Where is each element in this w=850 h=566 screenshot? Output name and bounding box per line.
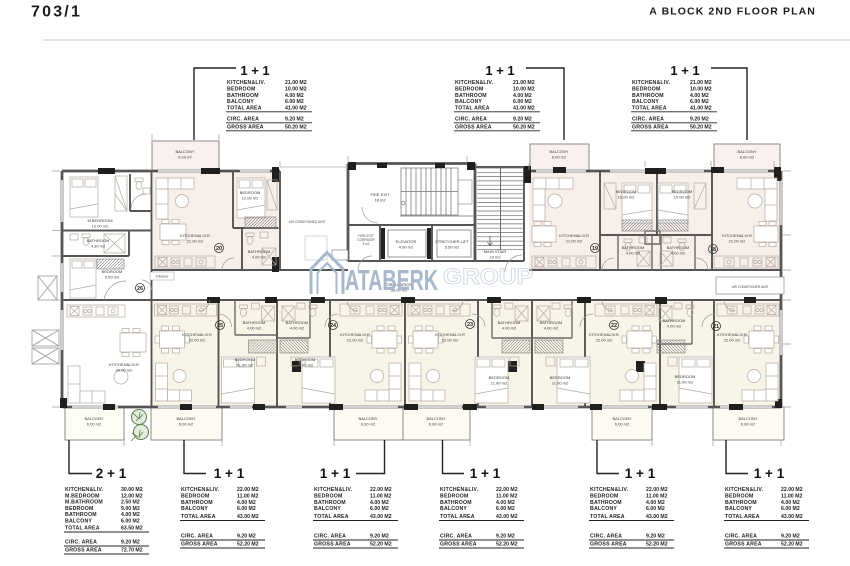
svg-text:52.20 M2: 52.20 M2: [781, 542, 803, 548]
svg-text:BALCONY6.00 m2: BALCONY6.00 m2: [738, 416, 757, 427]
svg-text:1 + 1: 1 + 1: [320, 466, 351, 481]
svg-text:1 + 1: 1 + 1: [470, 466, 501, 481]
svg-text:TOTAL AREA: TOTAL AREA: [181, 514, 216, 520]
svg-text:43.00 M2: 43.00 M2: [237, 514, 259, 520]
svg-text:TOTAL AREA: TOTAL AREA: [590, 514, 625, 520]
svg-text:9.20 M2: 9.20 M2: [121, 540, 140, 546]
svg-text:9.20 M2: 9.20 M2: [781, 534, 800, 540]
svg-text:703/1: 703/1: [31, 4, 82, 21]
svg-text:26: 26: [137, 286, 143, 292]
svg-text:CIRC. AREA: CIRC. AREA: [590, 534, 622, 540]
svg-text:22.00 M211.00 M24.00 M26.00 M2: 22.00 M211.00 M24.00 M26.00 M2: [496, 487, 518, 512]
svg-text:9.20 M2: 9.20 M2: [370, 534, 389, 540]
svg-text:25: 25: [217, 323, 223, 329]
svg-text:43.00 M2: 43.00 M2: [781, 514, 803, 520]
svg-text:63.50 M2: 63.50 M2: [121, 526, 143, 532]
svg-text:24: 24: [330, 323, 337, 329]
svg-text:9.20 M2: 9.20 M2: [646, 534, 665, 540]
svg-text:9.20 M2: 9.20 M2: [690, 117, 709, 123]
svg-text:GROSS AREA: GROSS AREA: [227, 125, 264, 131]
svg-text:22: 22: [611, 323, 617, 329]
svg-text:52.20 M2: 52.20 M2: [237, 542, 259, 548]
svg-text:23: 23: [467, 322, 473, 328]
svg-text:50.20 M2: 50.20 M2: [513, 125, 535, 131]
svg-text:BEDROOM11.00 m2: BEDROOM11.00 m2: [295, 357, 316, 368]
svg-text:Entrance: Entrance: [156, 275, 169, 279]
svg-text:CIRC. AREA: CIRC. AREA: [455, 117, 487, 123]
svg-text:1 + 1: 1 + 1: [240, 63, 269, 78]
svg-text:BEDROOM11.00 m2: BEDROOM11.00 m2: [550, 375, 571, 386]
svg-text:1 + 1: 1 + 1: [670, 63, 699, 78]
svg-text:GROSS AREA: GROSS AREA: [65, 548, 102, 554]
svg-text:1 + 1: 1 + 1: [625, 466, 656, 481]
svg-text:1 + 1: 1 + 1: [754, 466, 785, 481]
svg-text:TOTAL AREA: TOTAL AREA: [440, 514, 475, 520]
svg-text:TOTAL AREA: TOTAL AREA: [632, 106, 667, 112]
svg-text:43.00 M2: 43.00 M2: [370, 514, 392, 520]
svg-text:GROSS AREA: GROSS AREA: [440, 542, 477, 548]
svg-text:GROSS AREA: GROSS AREA: [632, 125, 669, 131]
svg-text:41.00 M2: 41.00 M2: [285, 106, 307, 112]
svg-text:50.20 M2: 50.20 M2: [285, 125, 307, 131]
svg-text:43.00 M2: 43.00 M2: [496, 514, 518, 520]
svg-text:50.20 M2: 50.20 M2: [690, 125, 712, 131]
svg-text:ATABERK: ATABERK: [345, 265, 438, 297]
svg-text:1 + 1: 1 + 1: [214, 466, 245, 481]
svg-text:BEDROOM11.00 m2: BEDROOM11.00 m2: [489, 375, 510, 386]
svg-text:TOTAL AREA: TOTAL AREA: [314, 514, 349, 520]
svg-text:GROSS AREA: GROSS AREA: [590, 542, 627, 548]
svg-text:43.00 M2: 43.00 M2: [646, 514, 668, 520]
svg-text:TOTAL AREA: TOTAL AREA: [65, 526, 100, 532]
svg-text:21.00 M210.00 M24.00 M26.00 M2: 21.00 M210.00 M24.00 M26.00 M2: [285, 80, 307, 105]
svg-text:TOTAL AREA: TOTAL AREA: [725, 514, 760, 520]
svg-text:22.00 M211.00 M24.00 M26.00 M2: 22.00 M211.00 M24.00 M26.00 M2: [237, 487, 259, 512]
svg-text:TOTAL AREA: TOTAL AREA: [227, 106, 262, 112]
svg-text:BEDROOM10.00 m2: BEDROOM10.00 m2: [672, 189, 693, 200]
svg-text:CIRC. AREA: CIRC. AREA: [440, 534, 472, 540]
svg-text:AIR CONDITIONER UNIT: AIR CONDITIONER UNIT: [732, 285, 769, 289]
svg-text:BEDROOM12.00 m2: BEDROOM12.00 m2: [240, 190, 261, 201]
svg-text:72.70 M2: 72.70 M2: [121, 548, 143, 554]
svg-text:9.20 M2: 9.20 M2: [237, 534, 256, 540]
svg-text:BEDROOM10.00 m2: BEDROOM10.00 m2: [616, 189, 637, 200]
svg-text:22.00 M211.00 M24.00 M26.00 M2: 22.00 M211.00 M24.00 M26.00 M2: [646, 487, 668, 512]
svg-text:BALCONY6.00 m2: BALCONY6.00 m2: [549, 149, 568, 160]
svg-text:GROSS AREA: GROSS AREA: [314, 542, 351, 548]
svg-text:BALCONY6.00 m2: BALCONY6.00 m2: [176, 416, 195, 427]
svg-text:CIRC. AREA: CIRC. AREA: [181, 534, 213, 540]
svg-text:18: 18: [710, 247, 716, 253]
svg-text:21.00 M210.00 M24.00 M26.00 M2: 21.00 M210.00 M24.00 M26.00 M2: [690, 80, 712, 105]
svg-text:9.20 M2: 9.20 M2: [285, 117, 304, 123]
svg-text:BALCONY6.00 m2: BALCONY6.00 m2: [426, 416, 445, 427]
svg-text:CIRC. AREA: CIRC. AREA: [227, 117, 259, 123]
svg-text:BALCONY6.00 m2: BALCONY6.00 m2: [612, 416, 631, 427]
svg-text:CIRC. AREA: CIRC. AREA: [632, 117, 664, 123]
svg-text:52.20 M2: 52.20 M2: [646, 542, 668, 548]
svg-text:CIRC. AREA: CIRC. AREA: [725, 534, 757, 540]
svg-text:20: 20: [216, 246, 222, 252]
svg-text:BALCONY6.00 m2: BALCONY6.00 m2: [358, 416, 377, 427]
svg-text:BEDROOM11.00 m2: BEDROOM11.00 m2: [235, 357, 256, 368]
svg-text:19: 19: [592, 246, 598, 252]
svg-text:GROSS AREA: GROSS AREA: [725, 542, 762, 548]
svg-text:22.00 M211.00 M24.00 M26.00 M2: 22.00 M211.00 M24.00 M26.00 M2: [781, 487, 803, 512]
svg-text:GROUP: GROUP: [443, 264, 533, 289]
svg-text:CIRC. AREA: CIRC. AREA: [314, 534, 346, 540]
svg-text:TOTAL AREA: TOTAL AREA: [455, 106, 490, 112]
svg-text:AIR CONDITIONED UNIT: AIR CONDITIONED UNIT: [289, 220, 326, 224]
svg-text:21: 21: [713, 324, 719, 330]
svg-text:41.00 M2: 41.00 M2: [690, 106, 712, 112]
svg-text:9.20 M2: 9.20 M2: [496, 534, 515, 540]
svg-text:GROSS AREA: GROSS AREA: [181, 542, 218, 548]
svg-text:9.20 M2: 9.20 M2: [513, 117, 532, 123]
svg-text:1 + 1: 1 + 1: [485, 63, 514, 78]
svg-text:2 + 1: 2 + 1: [96, 466, 127, 481]
svg-text:GROSS AREA: GROSS AREA: [455, 125, 492, 131]
svg-text:CIRC. AREA: CIRC. AREA: [65, 540, 97, 546]
svg-text:BEDROOM11.00 m2: BEDROOM11.00 m2: [675, 374, 696, 385]
svg-text:21.00 M210.00 M24.00 M26.00 M2: 21.00 M210.00 M24.00 M26.00 M2: [513, 80, 535, 105]
svg-text:A BLOCK 2ND FLOOR PLAN: A BLOCK 2ND FLOOR PLAN: [649, 6, 816, 18]
svg-text:22.00 M211.00 M24.00 M26.00 M2: 22.00 M211.00 M24.00 M26.00 M2: [370, 487, 392, 512]
svg-text:41.00 M2: 41.00 M2: [513, 106, 535, 112]
svg-text:52.20 M2: 52.20 M2: [370, 542, 392, 548]
svg-text:52.20 M2: 52.20 M2: [496, 542, 518, 548]
svg-text:BALCONY6.00 m2: BALCONY6.00 m2: [84, 416, 103, 427]
svg-text:BALCONY6.00 m2: BALCONY6.00 m2: [737, 149, 756, 160]
svg-text:30.00 M212.00 M22.50 M29.00 M2: 30.00 M212.00 M22.50 M29.00 M24.00 M26.0…: [121, 487, 143, 525]
